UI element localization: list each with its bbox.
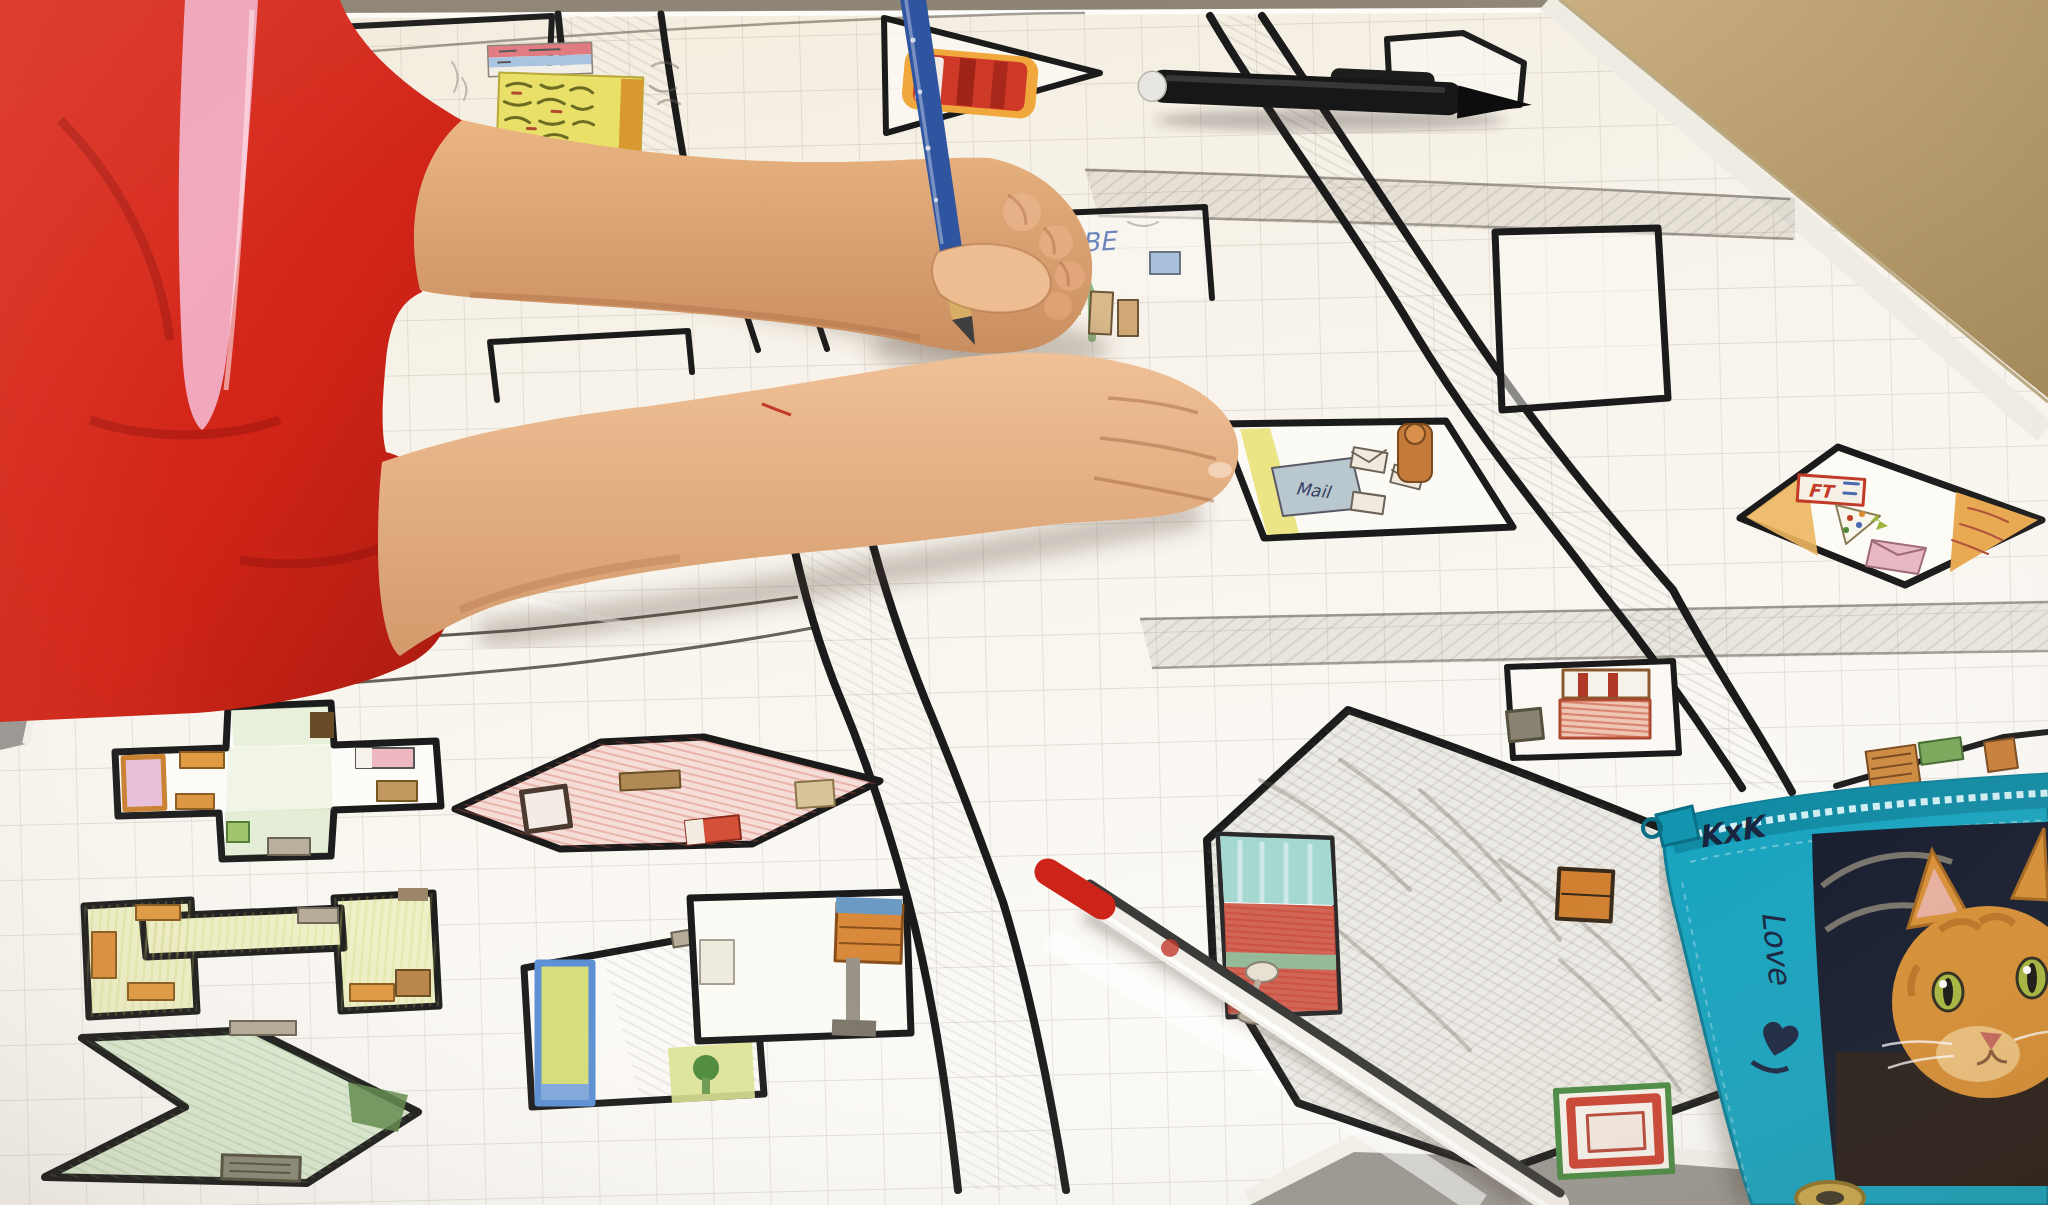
vignette	[0, 0, 2048, 1205]
photo-scene: BE Mail	[0, 0, 2048, 1205]
